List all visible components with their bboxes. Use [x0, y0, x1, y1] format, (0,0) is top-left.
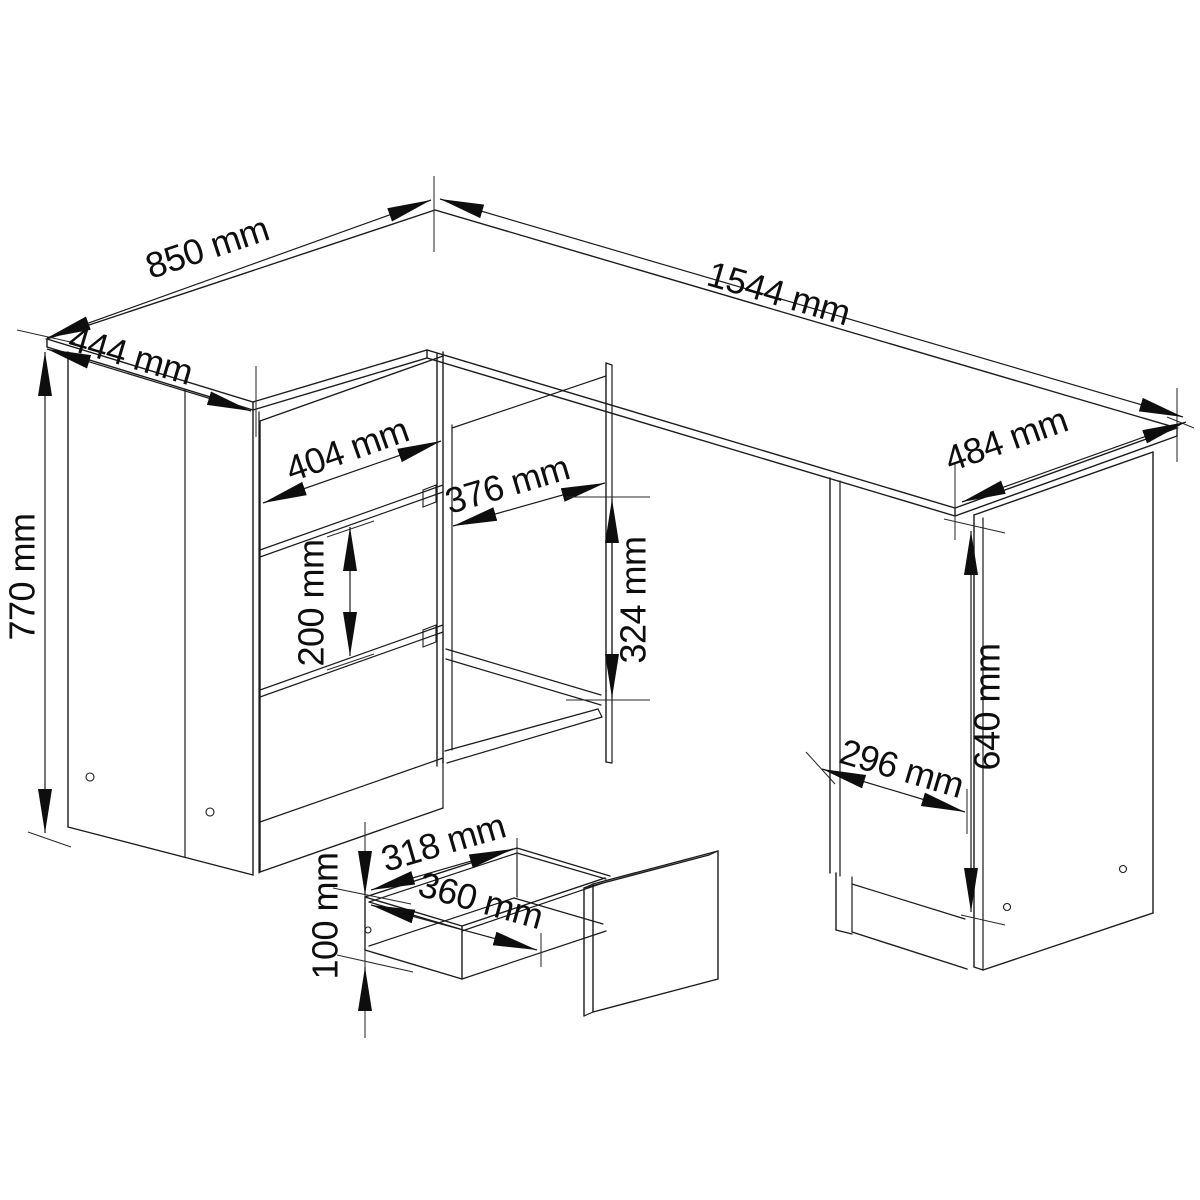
dim-640-label: 640 mm [967, 643, 1008, 770]
corner-desk-technical-drawing: 850 mm 1544 mm 444 mm 770 mm 404 mm 200 … [0, 0, 1200, 1200]
drawing-canvas: 850 mm 1544 mm 444 mm 770 mm 404 mm 200 … [0, 0, 1200, 1200]
dim-324-label: 324 mm [613, 536, 654, 663]
background [0, 0, 1200, 1200]
dim-100-label: 100 mm [305, 852, 346, 979]
dim-200-label: 200 mm [291, 539, 332, 666]
dim-770-label: 770 mm [2, 513, 43, 640]
